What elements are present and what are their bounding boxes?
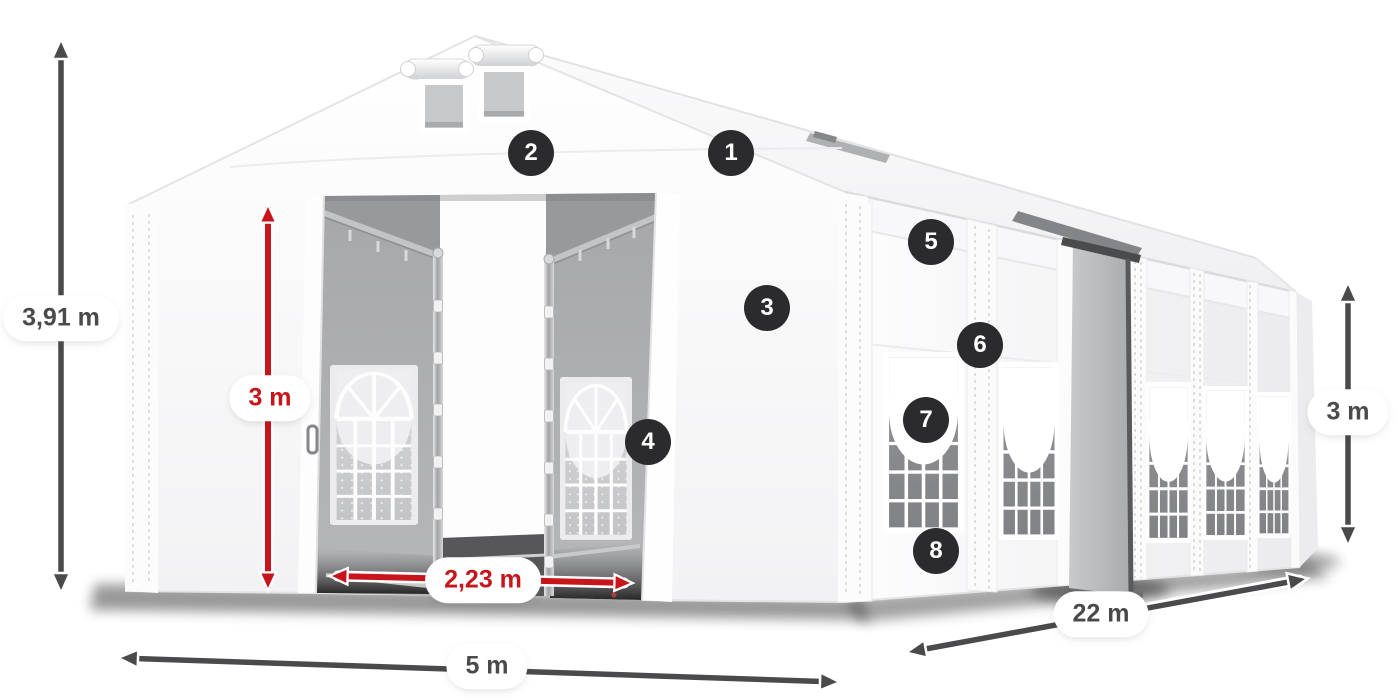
- callout-5[interactable]: 5: [908, 219, 954, 265]
- callout-4[interactable]: 4: [625, 419, 671, 465]
- mesh-window-right: [560, 377, 632, 540]
- tent-illustration: [0, 0, 1400, 700]
- callout-8[interactable]: 8: [913, 528, 959, 574]
- side-window-3: [1146, 382, 1191, 543]
- callout-1[interactable]: 1: [708, 130, 754, 176]
- dim-entrance-height-label: 3 m: [233, 379, 306, 417]
- callout-6[interactable]: 6: [957, 322, 1003, 368]
- side-window-2: [999, 362, 1059, 540]
- dim-ridge-height-label: 3,91 m: [7, 299, 115, 337]
- dim-side-length-label: 22 m: [1058, 595, 1145, 633]
- vent-roller-2: [469, 45, 544, 66]
- callout-7[interactable]: 7: [903, 397, 949, 443]
- side-door-pole: [1128, 259, 1131, 594]
- right-door-post: [544, 254, 554, 596]
- dim-front-width-value: 5 m: [465, 651, 508, 679]
- side-window-5: [1257, 392, 1291, 538]
- dim-front-width-label: 5 m: [450, 647, 523, 685]
- callout-2[interactable]: 2: [508, 130, 554, 176]
- dim-entrance-width-label: 2,23 m: [429, 561, 537, 599]
- vent-window-2: [478, 66, 530, 122]
- dim-entrance-width-value: 2,23 m: [444, 565, 522, 593]
- dim-side-height-label: 3 m: [1311, 393, 1384, 431]
- dim-entrance-height-value: 3 m: [248, 383, 291, 411]
- tent-dimension-diagram: 1 2 3 4 5 6 7 8 3,91 m 3 m 2,23 m 5 m 22…: [0, 0, 1400, 700]
- dim-side-height-value: 3 m: [1326, 397, 1369, 425]
- side-door-open: [1061, 237, 1143, 598]
- side-window-4: [1203, 386, 1248, 540]
- mesh-window-left: [330, 365, 418, 525]
- vent-roller-1: [401, 59, 474, 79]
- tie-strap-dot: [612, 593, 617, 598]
- left-door-post: [433, 248, 443, 594]
- dim-ridge-height-value: 3,91 m: [22, 303, 100, 331]
- callout-3[interactable]: 3: [744, 285, 790, 331]
- dim-side-length-value: 22 m: [1073, 599, 1130, 627]
- front-opening-interior: [310, 188, 670, 608]
- vent-window-1: [419, 79, 469, 133]
